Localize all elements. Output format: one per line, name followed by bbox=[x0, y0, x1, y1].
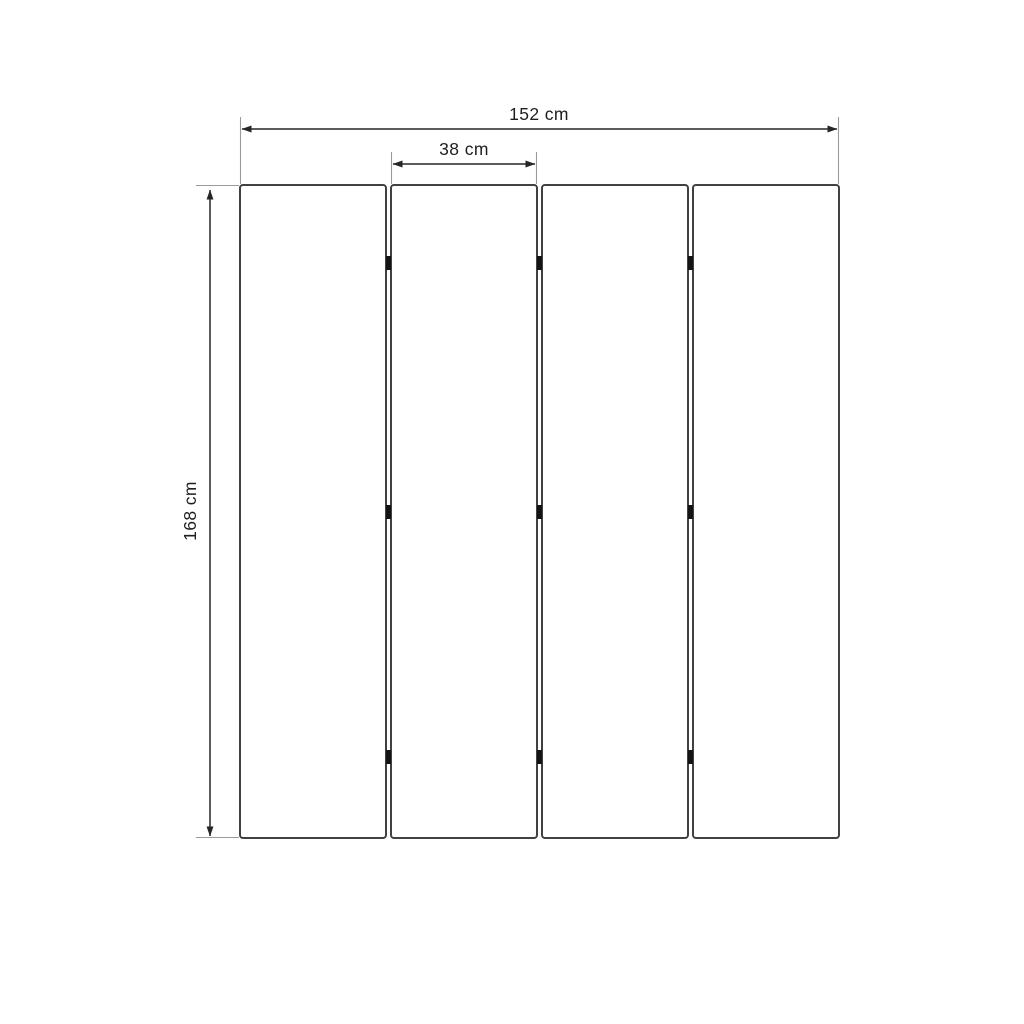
diagram-svg: 152 cm 38 cm 168 cm bbox=[0, 0, 1024, 1024]
hinge bbox=[537, 256, 542, 270]
hinge bbox=[386, 256, 391, 270]
hinge bbox=[537, 505, 542, 519]
total-width-label: 152 cm bbox=[509, 104, 569, 124]
hinge bbox=[537, 750, 542, 764]
panel-1 bbox=[240, 185, 386, 838]
dimension-diagram: 152 cm 38 cm 168 cm bbox=[0, 0, 1024, 1024]
hinge bbox=[688, 256, 693, 270]
hinge bbox=[688, 505, 693, 519]
hinge bbox=[386, 505, 391, 519]
hinge bbox=[688, 750, 693, 764]
panel-4 bbox=[693, 185, 839, 838]
panel-3 bbox=[542, 185, 688, 838]
panel-width-label: 38 cm bbox=[439, 139, 489, 159]
height-label: 168 cm bbox=[180, 481, 200, 541]
hinge bbox=[386, 750, 391, 764]
panel-2 bbox=[391, 185, 537, 838]
